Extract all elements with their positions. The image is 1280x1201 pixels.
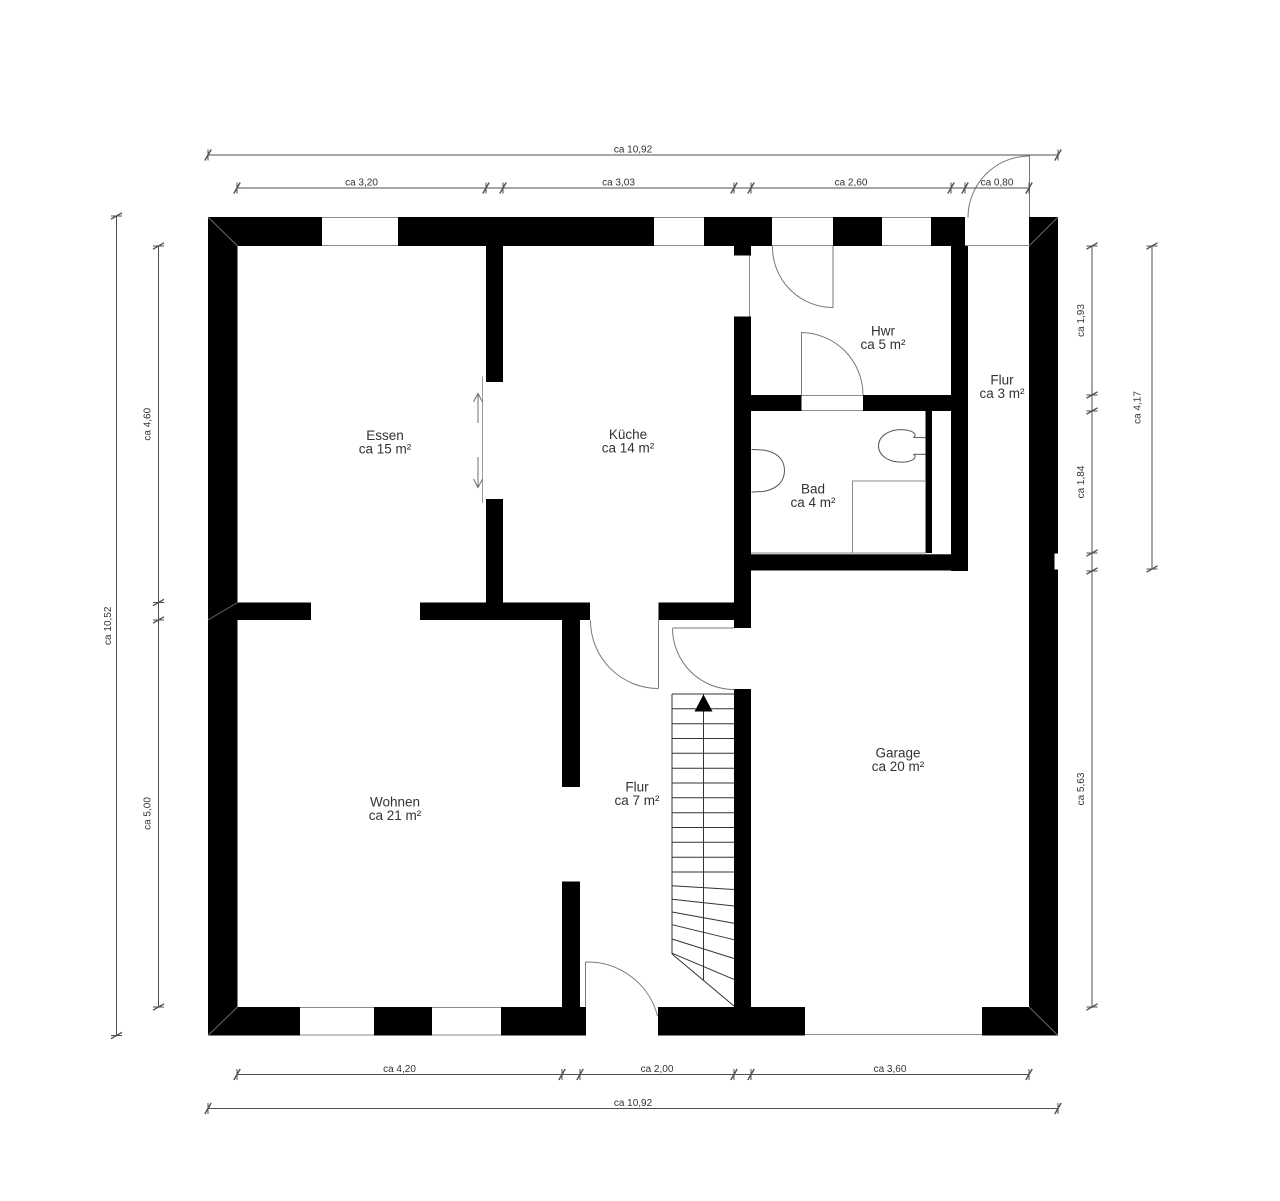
svg-text:ca 0,80: ca 0,80 (981, 178, 1014, 189)
svg-text:ca 10,52: ca 10,52 (103, 606, 114, 645)
svg-text:ca 4 m²: ca 4 m² (790, 495, 836, 510)
svg-text:ca 3,20: ca 3,20 (345, 178, 378, 189)
svg-text:ca 15 m²: ca 15 m² (359, 442, 412, 457)
svg-text:ca 7 m²: ca 7 m² (614, 793, 660, 808)
svg-text:ca 10,92: ca 10,92 (614, 145, 653, 156)
svg-text:ca 1,93: ca 1,93 (1076, 304, 1087, 337)
svg-text:ca 4,60: ca 4,60 (143, 407, 154, 440)
svg-text:ca 4,20: ca 4,20 (383, 1064, 416, 1075)
svg-text:ca 5,63: ca 5,63 (1076, 772, 1087, 805)
svg-text:ca 20 m²: ca 20 m² (872, 759, 925, 774)
svg-text:ca 10,92: ca 10,92 (614, 1098, 653, 1109)
svg-text:ca 5,00: ca 5,00 (143, 797, 154, 830)
svg-text:ca 21 m²: ca 21 m² (369, 808, 422, 823)
svg-text:ca 2,00: ca 2,00 (641, 1064, 674, 1075)
svg-text:ca 5 m²: ca 5 m² (860, 337, 906, 352)
svg-text:ca 3,60: ca 3,60 (874, 1064, 907, 1075)
svg-text:ca 14 m²: ca 14 m² (602, 441, 655, 456)
svg-text:ca 3 m²: ca 3 m² (979, 386, 1025, 401)
svg-text:ca 2,60: ca 2,60 (835, 178, 868, 189)
svg-text:ca 4,17: ca 4,17 (1133, 391, 1144, 424)
svg-text:ca 1,84: ca 1,84 (1076, 465, 1087, 498)
svg-text:ca 3,03: ca 3,03 (602, 178, 635, 189)
